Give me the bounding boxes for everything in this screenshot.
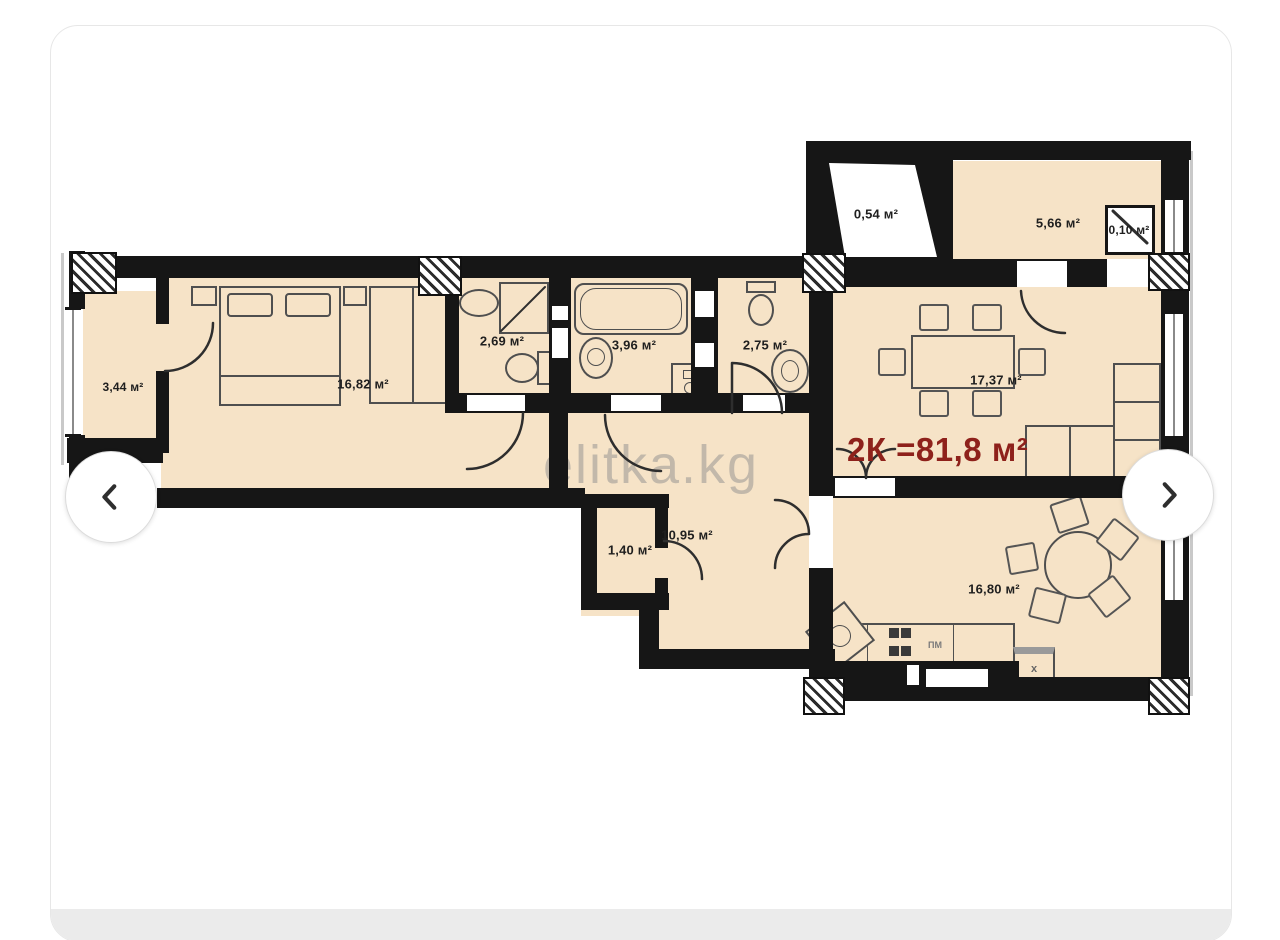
door-opening: [809, 496, 833, 568]
chair: [972, 390, 1002, 417]
room-area-label-bathroom-1: 2,69 м²: [480, 334, 524, 349]
chair: [878, 348, 906, 376]
column: [803, 677, 845, 715]
bathtub-inner: [580, 288, 682, 330]
window: [1165, 197, 1183, 255]
door-opening: [611, 395, 661, 411]
toilet-bowl: [505, 353, 539, 383]
wall-niche: [695, 291, 714, 317]
counter-divider: [953, 625, 954, 661]
apartment-area-title: 2К =81,8 м²: [847, 431, 1028, 469]
room-area-label-closet: 1,40 м²: [608, 543, 652, 558]
room-area-label-bedroom: 16,82 м²: [337, 377, 389, 392]
nightstand: [343, 286, 367, 306]
column: [802, 253, 846, 293]
room-area-label-bathroom-3: 2,75 м²: [743, 338, 787, 353]
toilet-tank: [746, 281, 776, 293]
fridge-label: х: [1031, 663, 1037, 675]
wall-segment: [581, 494, 669, 508]
floor-balcony: [83, 291, 161, 449]
chevron-right-icon: [1149, 476, 1187, 514]
door-opening: [835, 478, 895, 496]
floor-plan-image: elitka.kg: [50, 25, 1232, 940]
window: [1165, 311, 1183, 439]
column: [1148, 677, 1190, 715]
screenshot-stage: elitka.kg: [0, 0, 1280, 940]
sink-drain: [587, 348, 605, 366]
wall-segment: [809, 254, 833, 688]
sink: [459, 289, 499, 317]
wall-segment: [581, 593, 669, 610]
wall-niche: [907, 665, 919, 685]
wall-segment: [639, 649, 835, 669]
outer-contour: [61, 253, 64, 465]
shower: [499, 282, 549, 334]
photo-card: elitka.kg: [50, 25, 1232, 940]
column: [418, 256, 462, 296]
wall-niche: [695, 343, 714, 367]
sink-basin: [781, 360, 799, 382]
stove-burner: [889, 646, 899, 656]
carousel-prev-button[interactable]: [65, 451, 157, 543]
wardrobe-divider: [412, 288, 414, 402]
door-opening: [1017, 261, 1067, 287]
wall-segment: [156, 278, 169, 324]
room-area-label-living: 17,37 м²: [970, 373, 1022, 388]
chair: [1005, 542, 1040, 576]
nightstand: [191, 286, 217, 306]
wall-segment: [549, 413, 568, 508]
column: [1148, 253, 1190, 291]
window: [65, 307, 81, 437]
column: [71, 252, 117, 294]
wall-segment: [156, 371, 169, 453]
sofa-cushion-line: [1115, 401, 1159, 403]
door-opening: [743, 395, 785, 411]
room-area-label-shaft: 0,54 м²: [854, 207, 898, 222]
card-footer-strip: [51, 909, 1231, 940]
wall-niche: [552, 328, 568, 358]
stove-burner: [901, 628, 911, 638]
blanket-line: [219, 375, 341, 377]
toilet-bowl: [748, 294, 774, 326]
sofa-cushion-line: [1069, 427, 1071, 477]
wall-niche: [926, 669, 988, 687]
watermark: elitka.kg: [543, 434, 759, 496]
carousel-next-button[interactable]: [1122, 449, 1214, 541]
room-area-label-hallway: 10,95 м²: [661, 528, 713, 543]
door-opening: [467, 395, 525, 411]
room-area-label-duct: 0,10 м²: [1109, 223, 1150, 237]
stove-burner: [889, 628, 899, 638]
wall-segment: [445, 278, 459, 398]
chair: [972, 304, 1002, 331]
chair: [919, 390, 949, 417]
room-area-label-kitchen: 16,80 м²: [968, 582, 1020, 597]
pillow: [285, 293, 331, 317]
room-area-label-balcony: 3,44 м²: [103, 380, 144, 394]
room-area-label-bathroom-2: 3,96 м²: [612, 338, 656, 353]
wall-segment: [157, 488, 585, 508]
door-opening: [1107, 259, 1151, 287]
chair: [919, 304, 949, 331]
chevron-left-icon: [92, 478, 130, 516]
stove-burner: [901, 646, 911, 656]
wall-segment: [639, 606, 659, 669]
wall-niche: [552, 306, 568, 320]
dishwasher-label: ПМ: [928, 640, 942, 650]
pillow: [227, 293, 273, 317]
outer-contour: [1190, 151, 1193, 696]
room-area-label-loggia: 5,66 м²: [1036, 216, 1080, 231]
chair: [1018, 348, 1046, 376]
sofa-cushion-line: [1115, 439, 1159, 441]
